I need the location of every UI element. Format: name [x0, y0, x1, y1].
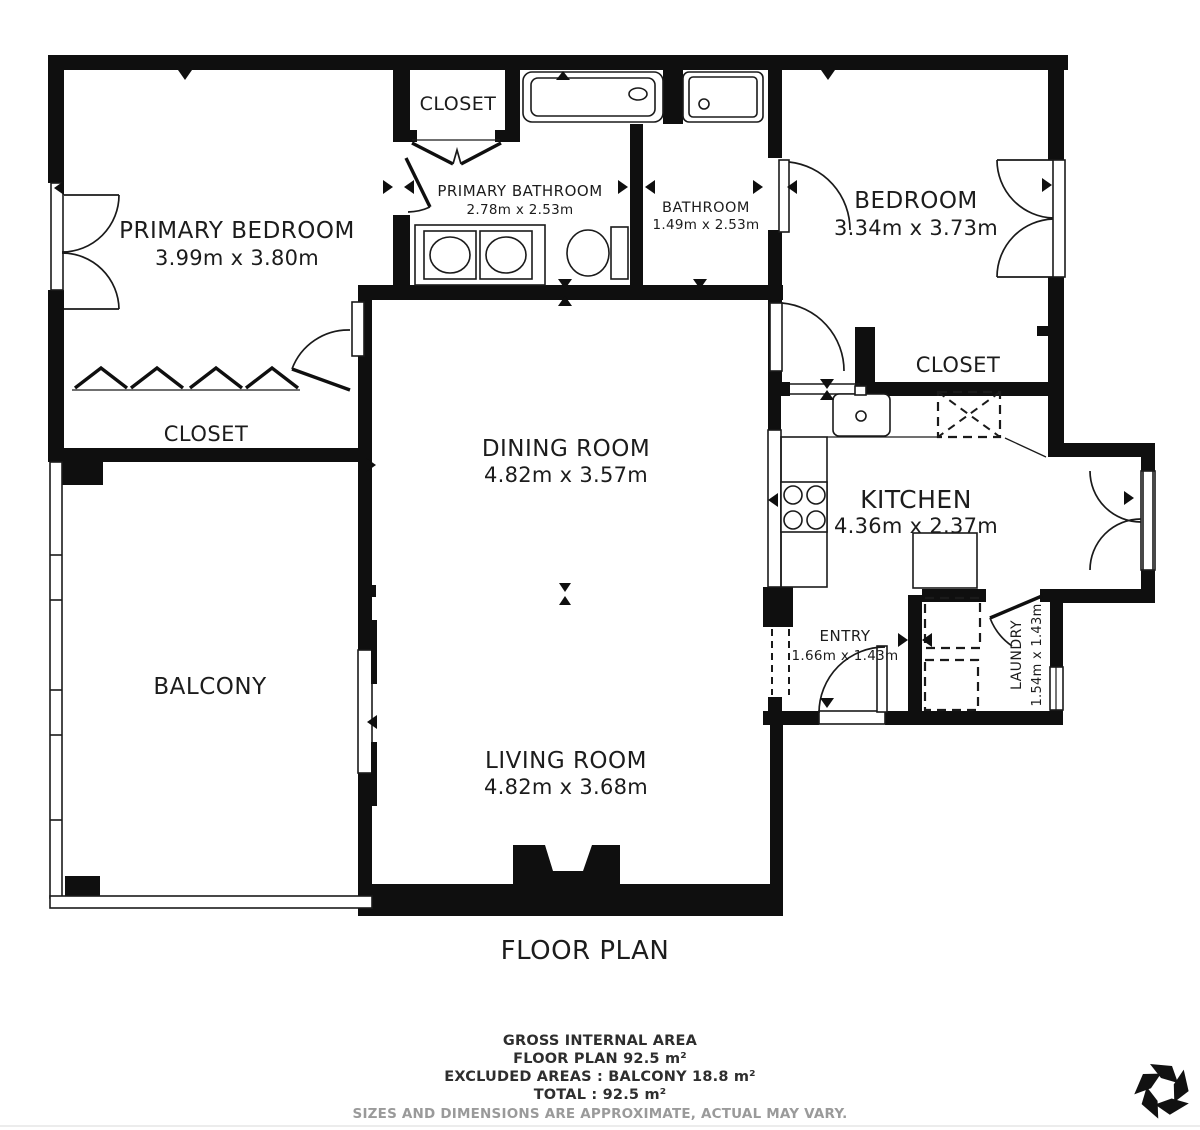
laundry-window: [1050, 667, 1063, 710]
bedroom-french-doors: [997, 160, 1065, 277]
room-labels: PRIMARY BEDROOM 3.99m x 3.80m CLOSET PRI…: [119, 93, 1045, 966]
primary-bedroom-double-door: [51, 183, 119, 309]
summary-disclaimer: SIZES AND DIMENSIONS ARE APPROXIMATE, AC…: [0, 1105, 1200, 1123]
room-dims-laundry: 1.54m x 1.43m: [1030, 603, 1045, 706]
stove-cooktop: [781, 482, 827, 532]
closet-hall-end-door: [292, 302, 364, 390]
room-dims-primary-bathroom: 2.78m x 2.53m: [467, 202, 574, 218]
room-dims-bedroom: 3.34m x 3.73m: [834, 216, 998, 240]
room-dims-entry: 1.66m x 1.43m: [792, 648, 899, 664]
room-dims-primary-bedroom: 3.99m x 3.80m: [155, 246, 319, 270]
floor-plan-drawing: PRIMARY BEDROOM 3.99m x 3.80m CLOSET PRI…: [0, 0, 1200, 1010]
room-label-bathroom: BATHROOM: [662, 200, 750, 216]
bedroom-hall-door: [770, 303, 844, 371]
room-dims-living-room: 4.82m x 3.68m: [484, 775, 648, 799]
room-label-bedroom: BEDROOM: [854, 188, 978, 214]
room-label-living-room: LIVING ROOM: [485, 748, 647, 774]
room-label-primary-bathroom: PRIMARY BATHROOM: [437, 182, 602, 200]
floor-plan-page: PRIMARY BEDROOM 3.99m x 3.80m CLOSET PRI…: [0, 0, 1200, 1130]
room-label-kitchen: KITCHEN: [860, 485, 972, 514]
plan-title: FLOOR PLAN: [501, 936, 670, 966]
room-dims-bathroom: 1.49m x 2.53m: [653, 217, 760, 233]
bathtub: [523, 72, 663, 122]
closet-top-bifold-doors: [412, 140, 501, 164]
room-label-closet-top: CLOSET: [420, 93, 497, 115]
room-label-closet-hall: CLOSET: [164, 422, 249, 446]
room-label-balcony: BALCONY: [153, 674, 267, 700]
toilet: [567, 227, 628, 279]
room-label-closet-bedroom: CLOSET: [916, 353, 1001, 377]
room-dims-kitchen: 4.36m x 2.37m: [834, 514, 998, 538]
double-vanity-sinks: [415, 225, 545, 285]
washer-dryer-dashed: [925, 598, 980, 710]
summary-total-area: TOTAL : 92.5 m²: [0, 1086, 1200, 1104]
room-label-entry: ENTRY: [820, 627, 871, 645]
area-summary: GROSS INTERNAL AREA FLOOR PLAN 92.5 m² E…: [0, 1032, 1200, 1123]
pinwheel-star-logo-icon: [1128, 1055, 1198, 1125]
kitchen-french-doors: [1090, 471, 1153, 570]
summary-gross-internal-area: GROSS INTERNAL AREA: [0, 1032, 1200, 1050]
opening-markers: [54, 70, 1134, 729]
entry-open-passage: [772, 629, 789, 695]
kitchen-island: [913, 533, 977, 588]
page-bottom-divider: [0, 1125, 1200, 1127]
room-dims-dining-room: 4.82m x 3.57m: [484, 463, 648, 487]
room-label-laundry: LAUNDRY: [1009, 620, 1025, 690]
room-label-dining-room: DINING ROOM: [482, 436, 650, 462]
room-label-primary-bedroom: PRIMARY BEDROOM: [119, 218, 355, 244]
kitchen-sink: [833, 386, 890, 436]
shower: [683, 72, 763, 122]
summary-excluded-areas: EXCLUDED AREAS : BALCONY 18.8 m²: [0, 1068, 1200, 1086]
summary-floor-plan-area: FLOOR PLAN 92.5 m²: [0, 1050, 1200, 1068]
refrigerator-dashed: [938, 392, 1000, 437]
kitchen-pass-through-window: [768, 430, 781, 587]
closet-hall-bifold-doors: [72, 368, 300, 390]
